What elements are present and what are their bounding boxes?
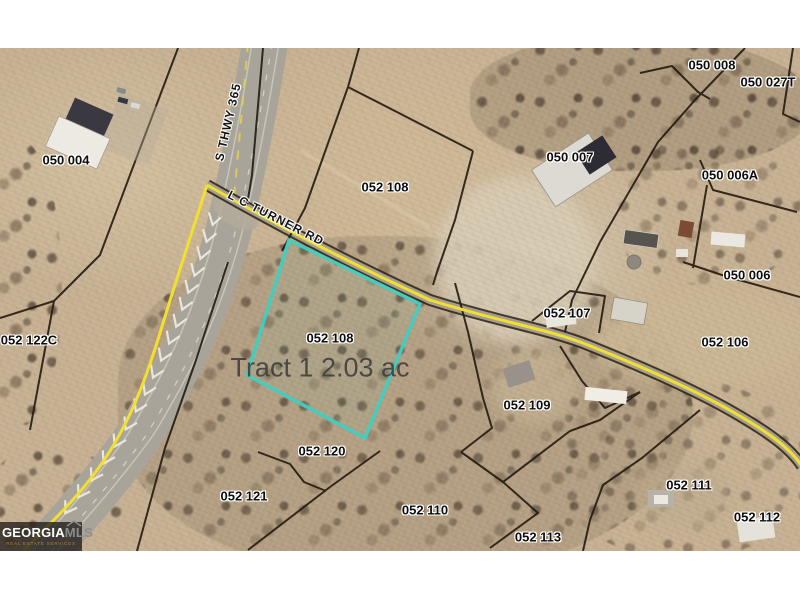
logo-tagline: REAL ESTATE SERVICES (2, 541, 80, 546)
logo-row: GEORGIA MLS (2, 526, 80, 540)
road-label-s-hwy-365: S THWY 365 (212, 82, 244, 163)
tract-acreage-label: Tract 1 2.03 ac (230, 353, 409, 384)
house-roof-icon (66, 520, 82, 527)
page: { "map": { "colors": { "highlight": "#3f… (0, 0, 800, 600)
logo-text-mls: MLS (65, 526, 93, 540)
georgia-mls-watermark: GEORGIA MLS REAL ESTATE SERVICES (0, 522, 82, 551)
road-label-lc-turner-rd: L C TURNER RD (226, 188, 327, 249)
logo-text-georgia: GEORGIA (2, 526, 65, 540)
road-labels-layer: S THWY 365L C TURNER RD (0, 48, 800, 551)
map-canvas[interactable]: 050 004050 008050 027T050 007050 006A050… (0, 48, 800, 551)
